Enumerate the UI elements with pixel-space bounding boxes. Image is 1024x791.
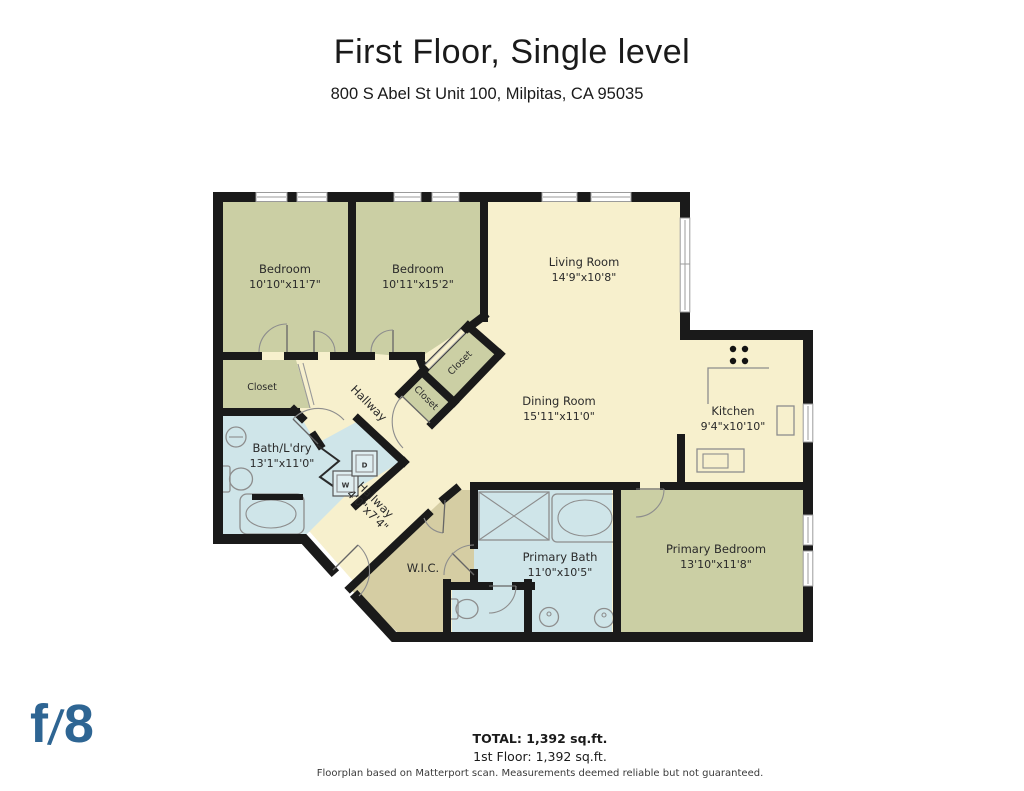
dims-primary-bedroom: 13'10"x11'8" — [680, 558, 752, 571]
total-area: TOTAL: 1,392 sq.ft. — [56, 731, 1024, 746]
label-kitchen: Kitchen — [711, 404, 754, 418]
footer: TOTAL: 1,392 sq.ft. 1st Floor: 1,392 sq.… — [56, 731, 1024, 779]
washer-label: W — [342, 482, 350, 490]
label-wic: W.I.C. — [407, 561, 439, 575]
dryer: D — [352, 451, 377, 476]
label-primary-bedroom: Primary Bedroom — [666, 542, 766, 556]
label-bedroom2: Bedroom — [392, 262, 444, 276]
dims-bedroom1: 10'10"x11'7" — [249, 278, 321, 291]
logo-f: f — [30, 694, 48, 754]
dims-kitchen: 9'4"x10'10" — [701, 420, 766, 433]
dims-bedroom2: 10'11"x15'2" — [382, 278, 454, 291]
logo-slash: / — [46, 697, 66, 758]
floor-plan: W D Bedroom 10'10"x11'7" Bedroom 10'11"x… — [0, 0, 1024, 791]
label-primary-bath: Primary Bath — [523, 550, 598, 564]
dims-dining-room: 15'11"x11'0" — [523, 410, 595, 423]
disclaimer: Floorplan based on Matterport scan. Meas… — [56, 768, 1024, 779]
dims-primary-bath: 11'0"x10'5" — [528, 566, 593, 579]
label-bedroom1: Bedroom — [259, 262, 311, 276]
label-dining-room: Dining Room — [522, 394, 596, 408]
label-bath-laundry: Bath/L'dry — [252, 441, 311, 455]
room-bedroom1 — [223, 202, 348, 352]
label-living-room: Living Room — [549, 255, 620, 269]
dryer-label: D — [362, 462, 368, 470]
dims-living-room: 14'9"x10'8" — [552, 271, 617, 284]
dims-bath-laundry: 13'1"x11'0" — [250, 457, 315, 470]
label-closet-bedroom1: Closet — [247, 382, 277, 393]
logo-eight: 8 — [64, 694, 94, 754]
first-floor-area: 1st Floor: 1,392 sq.ft. — [56, 749, 1024, 764]
f8-logo: f/8 — [30, 694, 94, 755]
